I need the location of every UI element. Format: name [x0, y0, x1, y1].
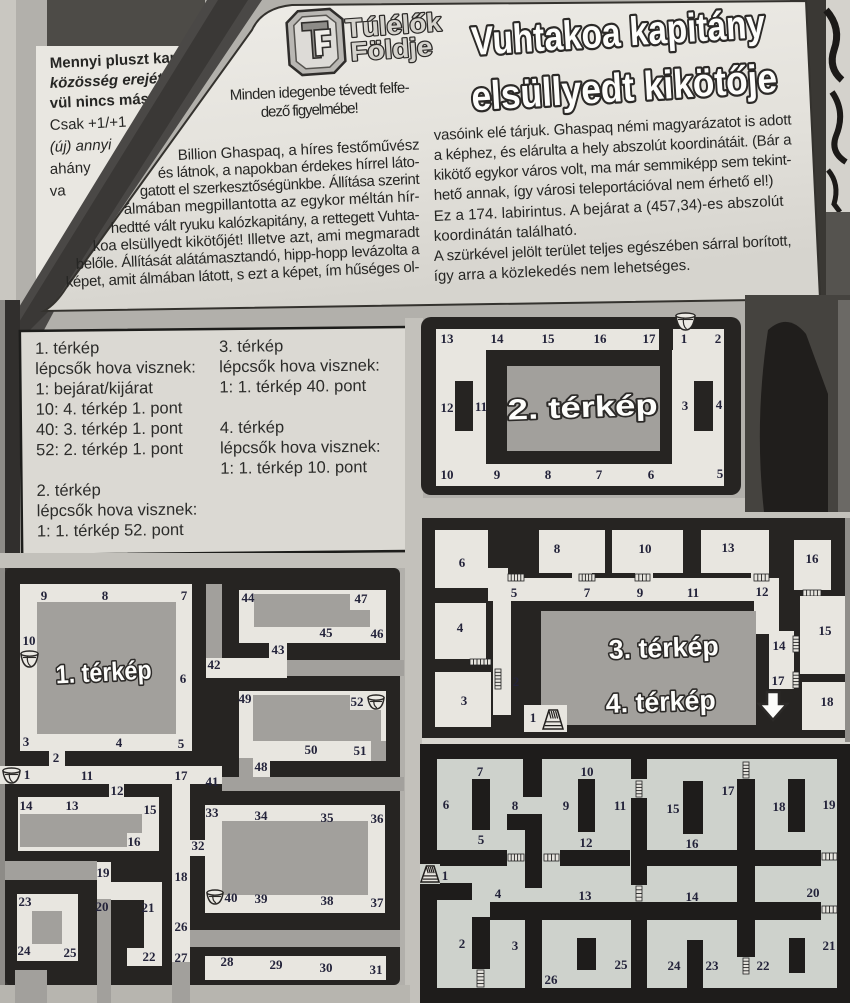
svg-text:34: 34 — [255, 808, 269, 823]
svg-text:25: 25 — [615, 957, 629, 972]
svg-text:2: 2 — [715, 331, 722, 346]
svg-text:20: 20 — [807, 885, 820, 900]
svg-text:lépcsők hova visznek:: lépcsők hova visznek: — [220, 438, 381, 458]
svg-text:9: 9 — [494, 467, 501, 482]
svg-text:8: 8 — [512, 798, 519, 813]
svg-text:3: 3 — [23, 734, 30, 749]
svg-text:5: 5 — [511, 585, 518, 600]
svg-text:10: 10 — [23, 633, 36, 648]
svg-text:33: 33 — [206, 805, 220, 820]
svg-text:6: 6 — [443, 797, 450, 812]
svg-text:10: 10 — [441, 467, 454, 482]
svg-text:2. térkép: 2. térkép — [507, 389, 658, 426]
svg-text:2: 2 — [53, 750, 60, 765]
svg-text:26: 26 — [545, 972, 559, 987]
svg-text:4: 4 — [457, 620, 464, 635]
svg-text:12: 12 — [111, 783, 124, 798]
svg-text:15: 15 — [819, 623, 833, 638]
svg-text:21: 21 — [823, 938, 836, 953]
svg-text:46: 46 — [371, 626, 385, 641]
svg-text:11: 11 — [614, 798, 626, 813]
svg-text:29: 29 — [270, 957, 284, 972]
svg-text:16: 16 — [806, 551, 820, 566]
svg-text:52: 52 — [351, 694, 364, 709]
svg-text:2: 2 — [459, 936, 466, 951]
svg-text:10: 4. térkép 1. pont: 10: 4. térkép 1. pont — [36, 399, 183, 419]
svg-text:45: 45 — [320, 625, 334, 640]
svg-text:8: 8 — [554, 541, 561, 556]
svg-text:21: 21 — [142, 900, 155, 915]
svg-text:50: 50 — [305, 742, 318, 757]
svg-text:42: 42 — [208, 657, 221, 672]
svg-text:3: 3 — [512, 938, 519, 953]
svg-text:12: 12 — [756, 584, 769, 599]
svg-text:9: 9 — [637, 585, 644, 600]
svg-text:17: 17 — [643, 331, 657, 346]
svg-text:8: 8 — [545, 467, 552, 482]
svg-text:2: 2 — [513, 674, 520, 689]
svg-text:7: 7 — [477, 764, 484, 779]
svg-text:7: 7 — [596, 467, 603, 482]
svg-text:15: 15 — [667, 801, 681, 816]
svg-text:9: 9 — [41, 588, 48, 603]
svg-text:48: 48 — [255, 759, 269, 774]
svg-text:9: 9 — [563, 798, 570, 813]
svg-text:4. térkép: 4. térkép — [220, 418, 284, 437]
svg-text:Földje: Földje — [349, 31, 433, 67]
svg-text:52: 2. térkép 1. pont: 52: 2. térkép 1. pont — [36, 440, 183, 460]
svg-text:11: 11 — [687, 585, 699, 600]
svg-text:16: 16 — [594, 331, 608, 346]
svg-text:15: 15 — [542, 331, 556, 346]
svg-text:4: 4 — [495, 886, 502, 901]
svg-text:6: 6 — [180, 671, 187, 686]
svg-text:24: 24 — [668, 958, 682, 973]
svg-text:16: 16 — [686, 836, 700, 851]
svg-text:2. térkép: 2. térkép — [36, 481, 100, 500]
svg-text:17: 17 — [175, 768, 189, 783]
svg-text:1: 1 — [24, 767, 31, 782]
svg-text:1: bejárat/kijárat: 1: bejárat/kijárat — [35, 379, 153, 398]
svg-text:1: 1 — [442, 868, 449, 883]
svg-text:28: 28 — [221, 954, 235, 969]
svg-text:18: 18 — [773, 799, 787, 814]
svg-text:6: 6 — [648, 467, 655, 482]
svg-text:12: 12 — [580, 835, 593, 850]
svg-text:10: 10 — [581, 764, 594, 779]
svg-text:19: 19 — [97, 865, 111, 880]
svg-text:1. térkép: 1. térkép — [35, 339, 99, 358]
svg-text:13: 13 — [722, 540, 736, 555]
svg-text:5: 5 — [478, 832, 485, 847]
svg-text:13: 13 — [579, 888, 593, 903]
svg-text:19: 19 — [823, 797, 837, 812]
svg-text:17: 17 — [722, 783, 736, 798]
svg-text:5: 5 — [717, 466, 724, 481]
svg-text:13: 13 — [441, 331, 455, 346]
svg-text:31: 31 — [370, 962, 383, 977]
svg-text:lépcsők hova visznek:: lépcsők hova visznek: — [35, 358, 196, 378]
svg-text:22: 22 — [757, 958, 770, 973]
svg-text:3. térkép: 3. térkép — [219, 337, 283, 356]
svg-text:35: 35 — [321, 810, 335, 825]
svg-text:24: 24 — [18, 943, 32, 958]
svg-text:10: 10 — [639, 541, 652, 556]
svg-text:Csak +1/+1: Csak +1/+1 — [49, 114, 126, 134]
svg-text:16: 16 — [128, 834, 142, 849]
svg-text:26: 26 — [175, 919, 189, 934]
svg-text:12: 12 — [441, 400, 454, 415]
svg-text:15: 15 — [144, 802, 158, 817]
svg-text:1: 1. térkép 10. pont: 1: 1. térkép 10. pont — [220, 458, 367, 478]
svg-text:4. térkép: 4. térkép — [605, 685, 716, 719]
svg-text:(új) annyi: (új) annyi — [49, 136, 112, 156]
svg-text:40: 3. térkép 1. pont: 40: 3. térkép 1. pont — [36, 420, 183, 440]
svg-text:37: 37 — [371, 895, 385, 910]
svg-text:7: 7 — [181, 588, 188, 603]
svg-text:14: 14 — [491, 331, 505, 346]
svg-text:1. térkép: 1. térkép — [55, 655, 152, 690]
svg-text:20: 20 — [96, 899, 109, 914]
svg-text:1: 1. térkép 52. pont: 1: 1. térkép 52. pont — [37, 521, 184, 541]
svg-text:40: 40 — [225, 890, 238, 905]
svg-text:13: 13 — [66, 798, 80, 813]
svg-text:lépcsők hova visznek:: lépcsők hova visznek: — [37, 501, 198, 521]
svg-text:3: 3 — [461, 693, 468, 708]
svg-text:14: 14 — [773, 638, 787, 653]
svg-text:lépcsők hova visznek:: lépcsők hova visznek: — [219, 357, 380, 377]
svg-text:1: 1 — [681, 331, 688, 346]
svg-text:27: 27 — [175, 950, 189, 965]
svg-text:22: 22 — [143, 949, 156, 964]
svg-text:36: 36 — [371, 811, 385, 826]
svg-text:14: 14 — [686, 889, 700, 904]
svg-text:44: 44 — [242, 590, 256, 605]
svg-text:30: 30 — [320, 960, 333, 975]
svg-text:49: 49 — [239, 691, 253, 706]
svg-text:4: 4 — [716, 397, 723, 412]
svg-text:17: 17 — [772, 673, 786, 688]
svg-text:8: 8 — [102, 588, 109, 603]
svg-text:va: va — [49, 182, 66, 200]
svg-text:3: 3 — [682, 398, 689, 413]
svg-text:6: 6 — [459, 555, 466, 570]
svg-text:23: 23 — [19, 894, 33, 909]
svg-text:7: 7 — [584, 585, 591, 600]
svg-text:39: 39 — [255, 891, 269, 906]
svg-text:32: 32 — [192, 838, 205, 853]
svg-text:14: 14 — [20, 798, 34, 813]
svg-text:5: 5 — [178, 736, 185, 751]
svg-text:11: 11 — [475, 399, 487, 414]
svg-text:1: 1 — [530, 710, 537, 725]
svg-text:43: 43 — [272, 642, 286, 657]
svg-text:4: 4 — [116, 735, 123, 750]
svg-text:11: 11 — [81, 768, 93, 783]
svg-text:41: 41 — [206, 774, 219, 789]
svg-text:23: 23 — [706, 958, 720, 973]
svg-text:47: 47 — [355, 591, 369, 606]
svg-text:51: 51 — [354, 743, 367, 758]
svg-text:3. térkép: 3. térkép — [608, 631, 719, 665]
svg-text:1: 1. térkép 40. pont: 1: 1. térkép 40. pont — [219, 377, 366, 397]
svg-text:25: 25 — [64, 945, 78, 960]
svg-text:18: 18 — [175, 869, 189, 884]
svg-text:38: 38 — [321, 893, 335, 908]
svg-text:18: 18 — [821, 694, 835, 709]
svg-text:ahány: ahány — [49, 159, 91, 178]
